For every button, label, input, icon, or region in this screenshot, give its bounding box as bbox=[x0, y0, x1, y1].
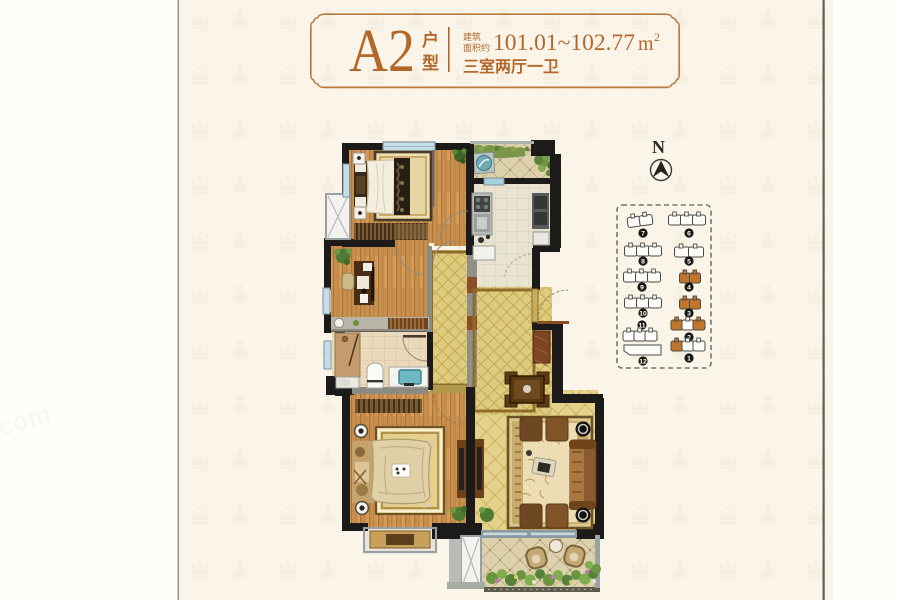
svg-text:8: 8 bbox=[641, 258, 645, 265]
svg-text:7: 7 bbox=[641, 230, 645, 237]
svg-text:4: 4 bbox=[687, 284, 691, 291]
svg-text:面积约: 面积约 bbox=[463, 42, 490, 53]
svg-text:建筑: 建筑 bbox=[463, 31, 481, 42]
svg-text:2: 2 bbox=[654, 30, 660, 44]
svg-text:m: m bbox=[638, 33, 654, 55]
svg-text:10: 10 bbox=[639, 310, 647, 317]
svg-text:三室两厅一卫: 三室两厅一卫 bbox=[463, 57, 559, 76]
svg-text:N: N bbox=[652, 137, 665, 157]
svg-text:9: 9 bbox=[640, 284, 644, 291]
svg-text:1: 1 bbox=[687, 355, 691, 362]
svg-text:6: 6 bbox=[687, 230, 691, 237]
svg-text:5: 5 bbox=[687, 258, 691, 265]
svg-text:3: 3 bbox=[687, 310, 691, 317]
svg-text:型: 型 bbox=[422, 53, 439, 73]
svg-text:户: 户 bbox=[422, 30, 439, 50]
svg-text:101.01~102.77: 101.01~102.77 bbox=[493, 30, 635, 55]
svg-text:12: 12 bbox=[639, 358, 647, 365]
svg-text:A2: A2 bbox=[349, 18, 415, 85]
